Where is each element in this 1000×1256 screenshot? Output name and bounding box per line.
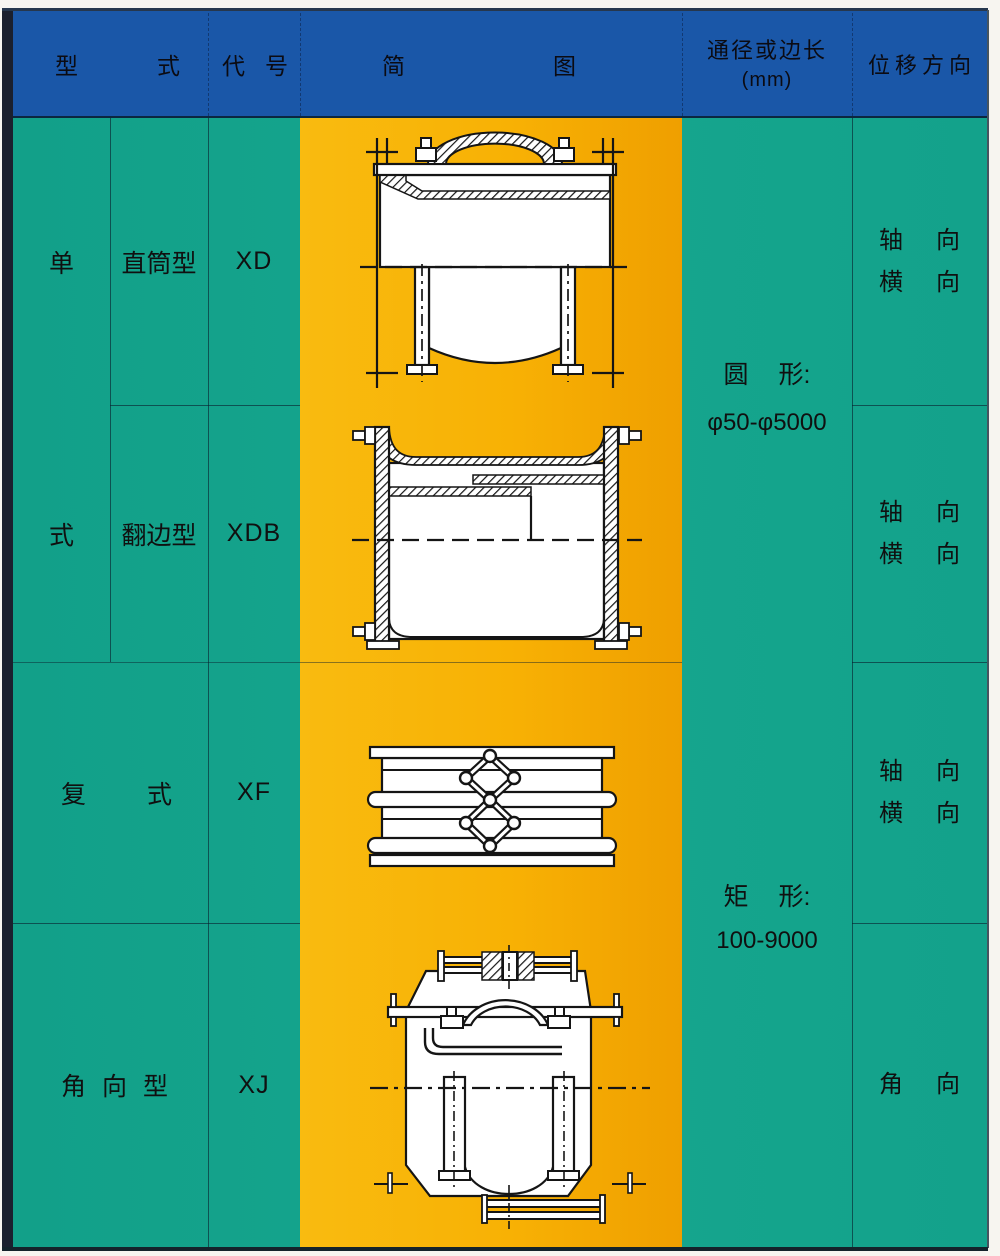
type-char: 角 — [61, 1067, 86, 1103]
xd-diagram — [360, 126, 630, 398]
size-char: 形: — [779, 354, 811, 396]
type-label: 直筒型 — [121, 244, 196, 280]
size-char: 圆 — [724, 354, 749, 396]
header-code-char: 代 — [222, 47, 245, 81]
cell-displacement-row2: 轴向 横向 — [852, 405, 987, 662]
type-char: 向 — [102, 1067, 127, 1103]
size-rect-range: 100-9000 — [682, 920, 852, 962]
header-displacement-label: 位移方向 — [863, 48, 976, 80]
size-char: 矩 — [724, 876, 749, 918]
cell-displacement-row3: 轴向 横向 — [852, 662, 987, 923]
size-char: 形: — [779, 876, 811, 918]
cell-code-row4: XJ — [208, 923, 300, 1247]
code-label: XDB — [227, 519, 281, 548]
cell-size-column: 圆 形: φ50-φ5000 矩 形: 100-9000 — [682, 118, 852, 1247]
header-size-line2: (mm) — [742, 67, 793, 93]
cell-code-row1: XD — [208, 118, 300, 405]
code-label: XF — [237, 778, 271, 807]
header-type: 型 式 — [13, 11, 208, 116]
header-type-char: 型 — [55, 47, 78, 81]
size-round-label: 圆 形: — [682, 354, 852, 396]
xf-diagram — [362, 700, 622, 920]
header-diagram: 简 图 — [300, 11, 682, 116]
cell-displacement-row1: 轴向 横向 — [852, 118, 987, 405]
header-displacement: 位移方向 — [852, 11, 987, 116]
table-bottom-border — [2, 1247, 988, 1251]
size-rect-label: 矩 形: — [682, 876, 852, 918]
cell-displacement-row4: 角向 — [852, 923, 987, 1247]
cell-code-row3: XF — [208, 662, 300, 923]
cell-code-row2: XDB — [208, 405, 300, 662]
code-label: XJ — [238, 1071, 269, 1100]
header-size-line1: 通径或边长 — [707, 35, 827, 67]
header-diagram-char: 图 — [553, 47, 576, 81]
header-code-char: 号 — [265, 47, 288, 81]
header-diagram-char: 简 — [382, 47, 405, 81]
cell-type-row3: 复 式 — [13, 662, 208, 923]
type-label: 翻边型 — [121, 516, 196, 552]
xj-diagram — [370, 945, 650, 1235]
type-char: 式 — [147, 775, 172, 811]
scanned-catalog-page: 型 式 代 号 简 图 通径或边长 (mm) 位移方向 单 式 直筒型 翻边型 … — [0, 0, 1000, 1256]
type-char: 型 — [143, 1067, 168, 1103]
xdb-diagram — [352, 415, 642, 655]
size-round-range: φ50-φ5000 — [682, 402, 852, 444]
type-group-char-bottom: 式 — [49, 516, 74, 552]
header-code: 代 号 — [208, 11, 300, 116]
table-right-border — [987, 10, 989, 1248]
cell-type-row1: 直筒型 — [110, 118, 208, 405]
type-char: 复 — [61, 775, 86, 811]
code-label: XD — [236, 247, 273, 276]
cell-type-group: 单 式 — [13, 118, 110, 662]
header-type-char: 式 — [157, 47, 180, 81]
header-size: 通径或边长 (mm) — [682, 11, 852, 116]
cell-type-row2: 翻边型 — [110, 405, 208, 662]
table-left-border — [2, 9, 13, 1251]
cell-type-row4: 角 向 型 — [13, 923, 208, 1247]
type-group-char-top: 单 — [49, 244, 74, 280]
